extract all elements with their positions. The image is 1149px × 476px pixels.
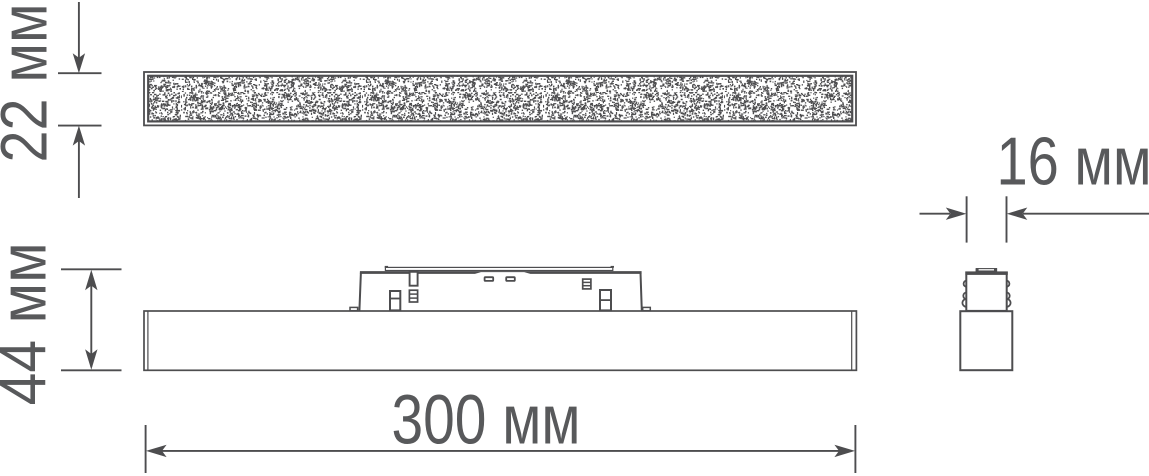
svg-text:300 мм: 300 мм — [392, 381, 581, 459]
svg-text:22 мм: 22 мм — [0, 4, 61, 163]
svg-text:44 мм: 44 мм — [0, 242, 60, 405]
svg-text:16 мм: 16 мм — [997, 124, 1149, 200]
